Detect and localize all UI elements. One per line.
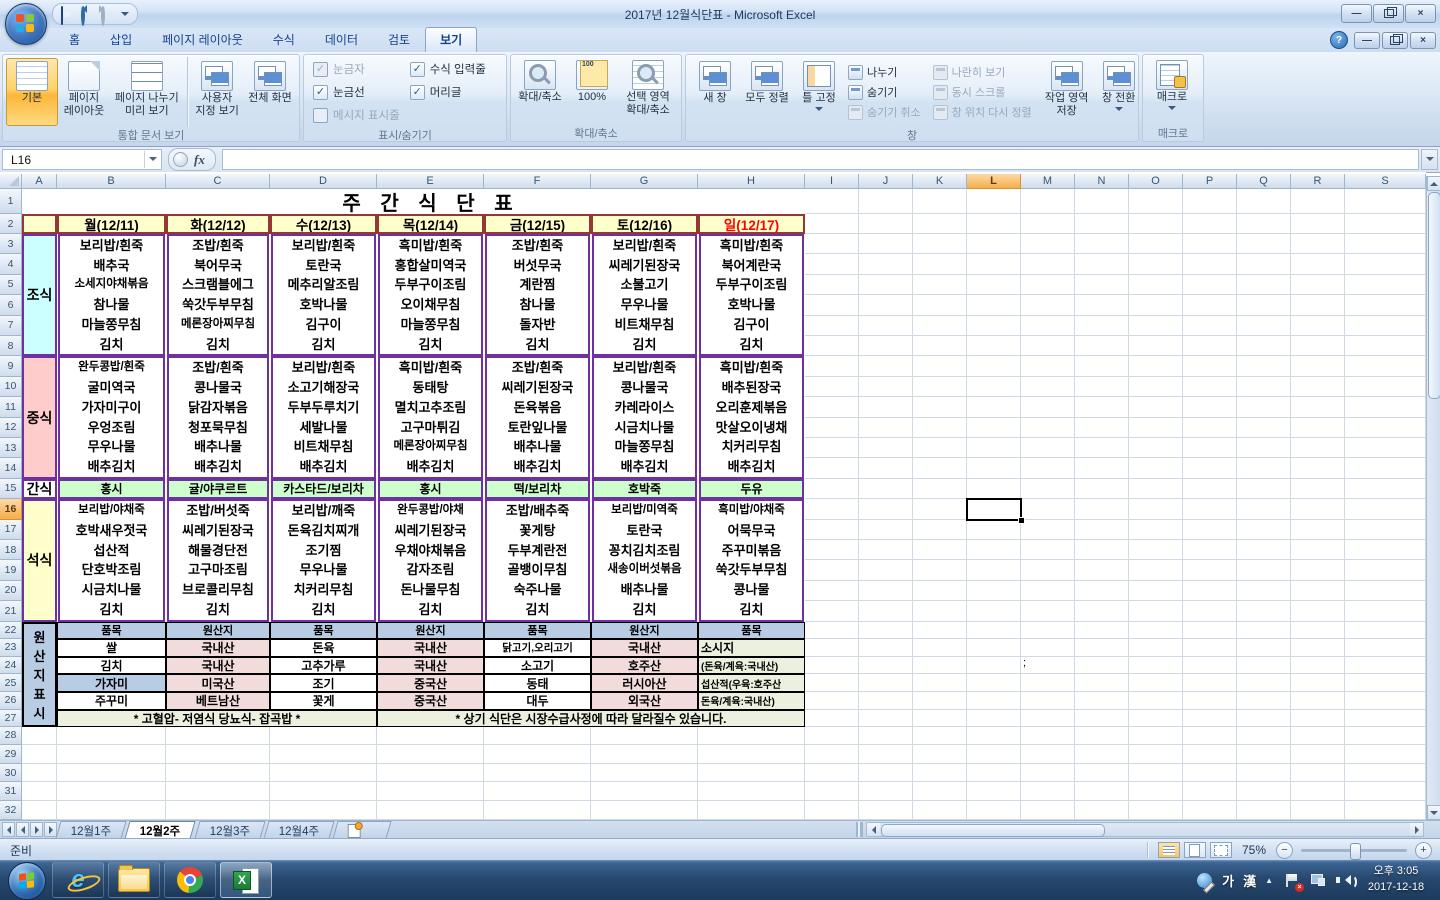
start-button[interactable] xyxy=(8,862,46,900)
sheet-tab-label: 12월4주 xyxy=(279,823,319,839)
origin-cell[interactable]: 가자미 xyxy=(57,674,166,692)
formula-bar: L16 fx xyxy=(0,147,1440,173)
menu-item: 조밥/배추죽 xyxy=(487,501,588,521)
normal-view-icon xyxy=(16,61,48,91)
title-bar: 2017년 12월식단표 - Microsoft Excel — × xyxy=(0,0,1440,29)
meal-cell-breakfast-day5[interactable]: 조밥/흰죽버섯무국계란찜참나물돌자반김치 xyxy=(485,234,590,356)
checkbox-label: 메시지 표시줄 xyxy=(333,107,400,123)
internet-explorer-button[interactable]: e xyxy=(52,862,104,898)
ribbon-button-label: 매크로 xyxy=(1157,91,1187,104)
function-circle-icon xyxy=(173,152,188,167)
row-header-3[interactable]: 3 xyxy=(0,234,22,254)
page-view-icon xyxy=(1189,844,1200,857)
ribbon-button-매크로[interactable]: 매크로 xyxy=(1146,57,1198,125)
ribbon-tab-삽입[interactable]: 삽입 xyxy=(95,27,147,52)
normal-view-button[interactable] xyxy=(1158,842,1180,858)
row-header-32[interactable]: 32 xyxy=(0,801,22,820)
row-header-20[interactable]: 20 xyxy=(0,581,22,601)
meal-cell-breakfast-day6[interactable]: 보리밥/흰죽씨레기된장국소불고기무우나물비트채무침김치 xyxy=(592,234,697,356)
close-button[interactable]: × xyxy=(1405,4,1436,23)
menu-item: 두부계란전 xyxy=(487,541,588,561)
row-header-2[interactable]: 2 xyxy=(0,214,22,234)
excel-application-window: 2017년 12월식단표 - Microsoft Excel — × 홈삽입페이… xyxy=(0,0,1440,900)
row-header-11[interactable]: 11 xyxy=(0,397,22,417)
selected-cell-outline[interactable] xyxy=(966,498,1022,520)
workbook-restore-button[interactable] xyxy=(1382,32,1408,49)
synchronous-scrolling-icon xyxy=(933,85,948,100)
vertical-scrollbar[interactable] xyxy=(1426,176,1440,820)
row-header-29[interactable]: 29 xyxy=(0,745,22,764)
origin-cell[interactable]: 국내산 xyxy=(166,639,270,657)
menu-item: 배추나물 xyxy=(594,580,695,600)
ribbon-button-페이지 나누기 미리 보기[interactable]: 페이지 나누기 미리 보기 xyxy=(110,58,184,126)
select-all-button[interactable] xyxy=(0,174,22,189)
column-header-E[interactable]: E xyxy=(377,174,484,189)
checkbox-수식 입력줄[interactable]: 수식 입력줄 xyxy=(410,61,486,77)
origin-header-cell[interactable]: 품목 xyxy=(698,622,805,640)
name-box-value: L16 xyxy=(11,153,31,167)
ribbon-button-숨기기[interactable]: 숨기기 xyxy=(848,83,921,101)
row-header-7[interactable]: 7 xyxy=(0,316,22,336)
action-center-icon[interactable]: × xyxy=(1282,871,1300,889)
chrome-button[interactable] xyxy=(164,862,216,898)
page-layout-view-icon xyxy=(68,61,100,91)
menu-item: 홍합살미역국 xyxy=(380,256,481,276)
ribbon-button-페이지 레이아웃[interactable]: 페이지 레이아웃 xyxy=(58,58,110,126)
page-layout-view-button[interactable] xyxy=(1184,842,1206,858)
row-header-28[interactable]: 28 xyxy=(0,727,22,746)
menu-item: 마늘쫑무침 xyxy=(594,437,695,457)
column-header-N[interactable]: N xyxy=(1075,174,1129,189)
checkbox-icon[interactable] xyxy=(313,85,328,100)
column-header-S[interactable]: S xyxy=(1345,174,1426,189)
menu-item: 두부두루치기 xyxy=(273,398,374,418)
ime-korean-indicator[interactable]: 가 xyxy=(1222,871,1234,890)
origin-cell[interactable]: 국내산 xyxy=(377,657,484,675)
origin-cell[interactable]: 외국산 xyxy=(591,692,698,710)
origin-cell[interactable]: 김치 xyxy=(57,657,166,675)
menu-item: 섭산적 xyxy=(60,541,163,561)
zoom-out-button[interactable]: − xyxy=(1276,842,1293,859)
origin-header-cell[interactable]: 품목 xyxy=(484,622,591,640)
origin-cell[interactable]: 닭고기,오리고기 xyxy=(484,639,591,657)
ribbon-tab-수식[interactable]: 수식 xyxy=(258,27,310,52)
day-header-목(12/14)[interactable]: 목(12/14) xyxy=(377,214,484,234)
ribbon-tab-보기[interactable]: 보기 xyxy=(425,27,477,52)
ribbon-button-나누기[interactable]: 나누기 xyxy=(848,63,921,81)
vertical-scroll-thumb[interactable] xyxy=(1428,192,1440,399)
origin-cell[interactable]: 꽃게 xyxy=(270,692,377,710)
scroll-right-button[interactable] xyxy=(1410,823,1423,836)
checkbox-눈금선[interactable]: 눈금선 xyxy=(313,84,400,100)
zoom-100-icon xyxy=(576,60,608,90)
meal-cell-dinner-day4[interactable]: 완두콩밥/야채씨레기된장국우채야채볶음감자조림돈나물무침김치 xyxy=(378,499,483,621)
row-header-19[interactable]: 19 xyxy=(0,560,22,580)
origin-cell[interactable]: 국내산 xyxy=(377,639,484,657)
diet-note-left[interactable]: * 고혈압- 저염식 당뇨식- 잡곡밥 * xyxy=(57,710,377,727)
insert-function-button[interactable]: fx xyxy=(168,148,216,171)
gridline xyxy=(22,744,1426,745)
day-header-spacer[interactable] xyxy=(22,214,57,234)
origin-header-cell[interactable]: 원산지 xyxy=(166,622,270,640)
checkbox-icon[interactable] xyxy=(410,62,425,77)
origin-cell[interactable]: 대두 xyxy=(484,692,591,710)
sheet-tab-navigation xyxy=(2,822,57,837)
menu-item: 비트채무침 xyxy=(594,315,695,335)
origin-header-cell[interactable]: 품목 xyxy=(270,622,377,640)
row-header-16[interactable]: 16 xyxy=(0,499,22,519)
menu-item: 굴미역국 xyxy=(60,378,163,398)
first-sheet-button[interactable] xyxy=(2,822,15,837)
zoom-slider-thumb[interactable] xyxy=(1350,843,1361,860)
meal-cell-snack-day4[interactable]: 홍시 xyxy=(378,479,483,499)
ribbon-button-전체 화면[interactable]: 전체 화면 xyxy=(244,58,296,126)
menu-item: 콩나물 xyxy=(701,580,802,600)
checkbox-icon[interactable] xyxy=(410,85,425,100)
ribbon-button-모두 정렬[interactable]: 모두 정렬 xyxy=(741,58,793,126)
meal-cell-dinner-day7[interactable]: 흑미밥/야채죽어묵무국주꾸미볶음쑥갓두부무침콩나물김치 xyxy=(699,499,804,621)
meal-cell-breakfast-day1[interactable]: 보리밥/흰죽배추국소세지야채볶음참나물마늘쫑무침김치 xyxy=(58,234,165,356)
ime-tool-icon[interactable] xyxy=(1195,871,1213,889)
sheet-tab-12월1주[interactable]: 12월1주 xyxy=(55,821,127,839)
ribbon-button-틀 고정[interactable]: 틀 고정 xyxy=(793,58,845,126)
zoom-slider-track[interactable] xyxy=(1301,849,1407,852)
menu-item: 보리밥/흰죽 xyxy=(594,358,695,378)
formula-input[interactable] xyxy=(222,149,1419,170)
checkbox-머리글[interactable]: 머리글 xyxy=(410,84,486,100)
menu-item: 고구마튀김 xyxy=(380,418,481,438)
arrow-up-icon xyxy=(1430,178,1438,186)
insert-worksheet-tab[interactable] xyxy=(333,821,392,839)
row-header-22[interactable]: 22 xyxy=(0,622,22,640)
column-header-C[interactable]: C xyxy=(166,174,270,189)
ribbon-button-label: 페이지 나누기 미리 보기 xyxy=(114,92,180,118)
chrome-icon xyxy=(177,867,203,893)
row-header-13[interactable]: 13 xyxy=(0,438,22,458)
row-header-10[interactable]: 10 xyxy=(0,377,22,397)
origin-header-cell[interactable]: 품목 xyxy=(57,622,166,640)
ribbon-button-label: 페이지 레이아웃 xyxy=(62,92,106,118)
meal-cell-lunch-day7[interactable]: 흑미밥/흰죽배추된장국오리훈제볶음맛살오이냉채치커리무침배추김치 xyxy=(699,356,804,478)
dropdown-arrow-icon xyxy=(1115,107,1123,115)
menu-item: 조기찜 xyxy=(273,541,374,561)
meal-cell-dinner-day2[interactable]: 조밥/버섯죽씨레기된장국해물경단전고구마조림브로콜리무침김치 xyxy=(167,499,269,621)
menu-item: 카레라이스 xyxy=(594,398,695,418)
formula-bar-expand-button[interactable] xyxy=(1421,149,1438,170)
origin-cell[interactable]: (돈육/계육:국내산) xyxy=(698,657,805,675)
day-header-토(12/16)[interactable]: 토(12/16) xyxy=(591,214,698,234)
menu-item: 가자미구이 xyxy=(60,398,163,418)
origin-cell[interactable]: 중국산 xyxy=(377,674,484,692)
page-break-view-button[interactable] xyxy=(1210,842,1232,858)
column-header-K[interactable]: K xyxy=(913,174,967,189)
row-header-1[interactable]: 1 xyxy=(0,189,22,214)
section-label-중식[interactable]: 중식 xyxy=(22,356,57,478)
sheet-tab-label: 12월3주 xyxy=(210,823,250,839)
ime-hanja-indicator[interactable]: 漢 xyxy=(1243,871,1256,890)
fill-handle[interactable] xyxy=(1018,517,1025,524)
sheet-tab-12월4주[interactable]: 12월4주 xyxy=(263,821,335,839)
menu-item: 쑥갓두부무침 xyxy=(169,295,267,315)
origin-cell[interactable]: 섭산적(우육:호주산 xyxy=(698,674,805,692)
meal-cell-snack-day3[interactable]: 카스타드/보리차 xyxy=(271,479,376,499)
arrow-down-icon xyxy=(1430,811,1438,819)
scroll-up-button[interactable] xyxy=(1427,176,1440,191)
row-header-17[interactable]: 17 xyxy=(0,520,22,540)
origin-cell[interactable]: 주꾸미 xyxy=(57,692,166,710)
ribbon-button-동시 스크롤: 동시 스크롤 xyxy=(933,83,1032,101)
day-header-일(12/17)[interactable]: 일(12/17) xyxy=(698,214,805,234)
menu-item: 흑미밥/흰죽 xyxy=(701,358,802,378)
column-header-F[interactable]: F xyxy=(484,174,591,189)
meal-cell-dinner-day1[interactable]: 보리밥/야채죽호박새우젓국섭산적단호박조림시금치나물김치 xyxy=(58,499,165,621)
menu-item: 배추나물 xyxy=(487,437,588,457)
page-break-icon xyxy=(1214,845,1228,856)
meal-cell-lunch-day5[interactable]: 조밥/흰죽씨레기된장국돈육볶음토란잎나물배추나물배추김치 xyxy=(485,356,590,478)
menu-item: 보리밥/흰죽 xyxy=(60,236,163,256)
column-header-M[interactable]: M xyxy=(1021,174,1075,189)
save-workspace-icon xyxy=(1051,61,1083,91)
gridline xyxy=(22,781,1426,782)
row-header-25[interactable]: 25 xyxy=(0,674,22,692)
ribbon-button-새 창[interactable]: 새 창 xyxy=(689,58,741,126)
day-header-수(12/13)[interactable]: 수(12/13) xyxy=(270,214,377,234)
menu-item: 단호박조림 xyxy=(60,560,163,580)
next-sheet-button[interactable] xyxy=(30,822,43,837)
day-header-월(12/11)[interactable]: 월(12/11) xyxy=(57,214,166,234)
sheet-tab-12월2주[interactable]: 12월2주 xyxy=(125,821,197,839)
column-header-I[interactable]: I xyxy=(805,174,859,189)
origin-cell[interactable]: 소시지 xyxy=(698,639,805,657)
ribbon-button-작업 영역 저장[interactable]: 작업 영역 저장 xyxy=(1041,58,1093,126)
meal-cell-breakfast-day2[interactable]: 조밥/흰죽북어무국스크램블에그쑥갓두부무침메론장아찌무침김치 xyxy=(167,234,269,356)
row-header-23[interactable]: 23 xyxy=(0,639,22,657)
meal-cell-breakfast-day4[interactable]: 흑미밥/흰죽홍합살미역국두부구이조림오이채무침마늘쫑무침김치 xyxy=(378,234,483,356)
origin-cell[interactable]: 돈육 xyxy=(270,639,377,657)
zoom-level[interactable]: 75% xyxy=(1242,843,1266,857)
origin-cell[interactable]: 베트남산 xyxy=(166,692,270,710)
ribbon-button-선택 영역 확대/축소[interactable]: 선택 영역 확대/축소 xyxy=(618,57,678,125)
column-header-O[interactable]: O xyxy=(1129,174,1183,189)
row-header-26[interactable]: 26 xyxy=(0,692,22,710)
menu-item: 메론장아찌무침 xyxy=(380,437,481,457)
sheet-tabs: 12월1주12월2주12월3주12월4주 xyxy=(58,821,392,839)
scroll-left-button[interactable] xyxy=(867,823,880,836)
switch-windows-icon xyxy=(1103,61,1135,91)
meal-cell-breakfast-day3[interactable]: 보리밥/흰죽토란국메추리알조림호박나물김구이김치 xyxy=(271,234,376,356)
column-header-P[interactable]: P xyxy=(1183,174,1237,189)
origin-header-cell[interactable]: 원산지 xyxy=(377,622,484,640)
section-label-원산지표시[interactable]: 원산지표시 xyxy=(22,622,57,727)
ribbon-group-label: 매크로 xyxy=(1143,127,1203,141)
sheet-tab-bar: 12월1주12월2주12월3주12월4주 xyxy=(0,820,1440,839)
ribbon-button-창 전환[interactable]: 창 전환 xyxy=(1093,58,1145,126)
restore-button[interactable] xyxy=(1373,4,1404,23)
ribbon-button-사용자 지정 보기[interactable]: 사용자 지정 보기 xyxy=(190,58,244,126)
meal-cell-snack-day2[interactable]: 귤/야쿠르트 xyxy=(167,479,269,499)
meal-cell-dinner-day5[interactable]: 조밥/배추죽꽃게탕두부계란전골뱅이무침숙주나물김치 xyxy=(485,499,590,621)
origin-label-char: 시 xyxy=(34,703,46,722)
ribbon-button-확대/축소[interactable]: 확대/축소 xyxy=(514,57,566,125)
column-header-J[interactable]: J xyxy=(859,174,913,189)
menu-item: 호박죽 xyxy=(594,481,695,497)
ribbon-button-기본[interactable]: 기본 xyxy=(6,58,58,126)
section-label-조식[interactable]: 조식 xyxy=(22,234,57,356)
ribbon-tab-검토[interactable]: 검토 xyxy=(373,27,425,52)
row-header-30[interactable]: 30 xyxy=(0,764,22,783)
meal-cell-lunch-day1[interactable]: 완두콩밥/흰죽굴미역국가자미구이우엉조림무우나물배추김치 xyxy=(58,356,165,478)
menu-item: 보리밥/흰죽 xyxy=(273,236,374,256)
origin-cell[interactable]: 호주산 xyxy=(591,657,698,675)
row-header-14[interactable]: 14 xyxy=(0,458,22,478)
ribbon-tabs: 홈삽입페이지 레이아웃수식데이터검토보기 xyxy=(54,28,477,52)
day-header-금(12/15)[interactable]: 금(12/15) xyxy=(484,214,591,234)
menu-item: 배추김치 xyxy=(273,457,374,477)
meal-cell-lunch-day6[interactable]: 보리밥/흰죽콩나물국카레라이스시금치나물마늘쫑무침배추김치 xyxy=(592,356,697,478)
menu-item: 해물경단전 xyxy=(169,541,267,561)
menu-title[interactable]: 주 간 식 단 표 xyxy=(57,189,805,214)
workbook-minimize-button[interactable]: — xyxy=(1354,32,1380,49)
sheet-tab-12월3주[interactable]: 12월3주 xyxy=(194,821,266,839)
ribbon-button-label: 기본 xyxy=(22,92,42,105)
menu-item: 골뱅이무침 xyxy=(487,560,588,580)
taskbar-clock[interactable]: 오후 3:05 2017-12-18 xyxy=(1358,863,1434,895)
origin-header-cell[interactable]: 원산지 xyxy=(591,622,698,640)
tab-scrollbar-splitter[interactable] xyxy=(856,822,863,837)
menu-item: 콩나물국 xyxy=(594,378,695,398)
row-header-9[interactable]: 9 xyxy=(0,356,22,376)
name-box-dropdown[interactable] xyxy=(144,151,161,168)
volume-icon[interactable] xyxy=(1336,871,1354,889)
split-icon xyxy=(848,65,863,80)
day-header-화(12/12)[interactable]: 화(12/12) xyxy=(166,214,270,234)
ribbon-group-content: 눈금자눈금선메시지 표시줄수식 입력줄머리글 xyxy=(304,55,506,129)
row-header-15[interactable]: 15 xyxy=(0,479,22,499)
ribbon-group-창: 새 창모두 정렬틀 고정나누기숨기기숨기기 취소나란히 보기동시 스크롤창 위치… xyxy=(685,54,1139,142)
menu-item: 닭감자볶음 xyxy=(169,398,267,418)
workbook-close-button[interactable]: × xyxy=(1410,32,1436,49)
origin-cell[interactable]: 동태 xyxy=(484,674,591,692)
row-header-24[interactable]: 24 xyxy=(0,657,22,675)
origin-cell[interactable]: 소고기 xyxy=(484,657,591,675)
menu-item: 홍시 xyxy=(380,481,481,497)
horizontal-scrollbar[interactable] xyxy=(866,822,1424,837)
ribbon-tab-페이지 레이아웃[interactable]: 페이지 레이아웃 xyxy=(147,27,258,52)
last-sheet-button[interactable] xyxy=(44,822,57,837)
meal-cell-lunch-day4[interactable]: 흑미밥/흰죽동태탕멸치고추조림고구마튀김메론장아찌무침배추김치 xyxy=(378,356,483,478)
excel-taskbar-button[interactable]: X xyxy=(220,862,272,898)
chevron-down-icon xyxy=(1426,157,1434,165)
diet-note-right[interactable]: * 상기 식단은 시장수급사정에 따라 달라질수 있습니다. xyxy=(377,710,805,727)
menu-item: 배추김치 xyxy=(60,457,163,477)
scroll-down-button[interactable] xyxy=(1427,805,1440,820)
origin-cell[interactable]: 미국산 xyxy=(166,674,270,692)
hide-window-icon xyxy=(848,85,863,100)
ribbon-button-label: 전체 화면 xyxy=(248,92,292,105)
section-label-석식[interactable]: 석식 xyxy=(22,499,57,621)
meal-cell-dinner-day6[interactable]: 보리밥/미역죽토란국꽁치김치조림새송이버섯볶음배추나물김치 xyxy=(592,499,697,621)
meal-cell-snack-day7[interactable]: 두유 xyxy=(699,479,804,499)
row-header-6[interactable]: 6 xyxy=(0,295,22,315)
row-header-18[interactable]: 18 xyxy=(0,540,22,560)
meal-cell-snack-day5[interactable]: 떡/보리차 xyxy=(485,479,590,499)
menu-item: 배추김치 xyxy=(169,457,267,477)
row-header-12[interactable]: 12 xyxy=(0,418,22,438)
menu-item: 조밥/흰죽 xyxy=(487,236,588,256)
meal-cell-lunch-day3[interactable]: 보리밥/흰죽소고기해장국두부두루치기세발나물비트채무침배추김치 xyxy=(271,356,376,478)
origin-cell[interactable]: 중국산 xyxy=(377,692,484,710)
ribbon-button-100%[interactable]: 100% xyxy=(566,57,618,125)
stray-cell-text: ; xyxy=(1023,657,1026,669)
row-header-4[interactable]: 4 xyxy=(0,254,22,274)
meal-cell-snack-day6[interactable]: 호박죽 xyxy=(592,479,697,499)
ribbon-group-label: 창 xyxy=(686,129,1138,143)
horizontal-scroll-thumb[interactable] xyxy=(881,824,1105,837)
origin-cell[interactable]: 국내산 xyxy=(166,657,270,675)
system-tray: 가 漢 ▲ × xyxy=(1195,860,1354,900)
row-header-21[interactable]: 21 xyxy=(0,601,22,621)
minimize-button[interactable]: — xyxy=(1341,4,1372,23)
row-header-31[interactable]: 31 xyxy=(0,782,22,801)
file-explorer-button[interactable] xyxy=(108,862,160,898)
origin-cell[interactable]: 조기 xyxy=(270,674,377,692)
previous-sheet-button[interactable] xyxy=(16,822,29,837)
ribbon-button-label: 작업 영역 저장 xyxy=(1045,92,1089,118)
restore-icon xyxy=(1384,9,1394,18)
ribbon-button-숨기기 취소: 숨기기 취소 xyxy=(848,103,921,121)
column-header-B[interactable]: B xyxy=(57,174,166,189)
menu-item: 두유 xyxy=(701,481,802,497)
menu-item: 참나물 xyxy=(487,295,588,315)
ribbon-group-content: 기본페이지 레이아웃페이지 나누기 미리 보기사용자 지정 보기전체 화면 xyxy=(3,55,299,129)
menu-item: 배추국 xyxy=(60,256,163,276)
meal-cell-lunch-day2[interactable]: 조밥/흰죽콩나물국닭감자볶음청포묵무침배추나물배추김치 xyxy=(167,356,269,478)
origin-cell[interactable]: 러시아산 xyxy=(591,674,698,692)
zoom-in-button[interactable]: + xyxy=(1415,842,1432,859)
column-header-Q[interactable]: Q xyxy=(1237,174,1291,189)
origin-cell[interactable]: 돈육/계육:국내산) xyxy=(698,692,805,710)
monitor-plug-icon xyxy=(1311,874,1325,886)
network-icon[interactable] xyxy=(1309,871,1327,889)
column-header-D[interactable]: D xyxy=(270,174,377,189)
meal-cell-dinner-day3[interactable]: 보리밥/깨죽돈육김치찌개조기찜무우나물치커리무침김치 xyxy=(271,499,376,621)
menu-item: 귤/야쿠르트 xyxy=(169,481,267,497)
origin-cell[interactable]: 고추가루 xyxy=(270,657,377,675)
office-button[interactable] xyxy=(5,3,47,45)
help-button[interactable]: ? xyxy=(1330,31,1348,49)
row-header-27[interactable]: 27 xyxy=(0,710,22,727)
name-box[interactable]: L16 xyxy=(2,149,162,170)
column-header-R[interactable]: R xyxy=(1291,174,1345,189)
ribbon-tab-데이터[interactable]: 데이터 xyxy=(310,27,373,52)
column-header-L[interactable]: L xyxy=(967,174,1021,189)
column-header-A[interactable]: A xyxy=(22,174,57,189)
origin-cell[interactable]: 국내산 xyxy=(591,639,698,657)
meal-cell-snack-day1[interactable]: 홍시 xyxy=(58,479,165,499)
row-header-5[interactable]: 5 xyxy=(0,275,22,295)
worksheet-grid: ABCDEFGHIJKLMNOPQRS123456789101112131415… xyxy=(0,172,1426,820)
origin-cell[interactable]: 쌀 xyxy=(57,639,166,657)
column-header-G[interactable]: G xyxy=(591,174,698,189)
tray-expand-button[interactable]: ▲ xyxy=(1265,876,1273,885)
ribbon-button-label: 선택 영역 확대/축소 xyxy=(622,91,674,117)
ribbon-tab-홈[interactable]: 홈 xyxy=(54,27,95,52)
column-header-H[interactable]: H xyxy=(698,174,805,189)
error-badge-icon: × xyxy=(1295,883,1304,892)
meal-cell-breakfast-day7[interactable]: 흑미밥/흰죽북어계란국두부구이조림호박나물김구이김치 xyxy=(699,234,804,356)
section-label-간식[interactable]: 간식 xyxy=(22,479,57,499)
row-header-8[interactable]: 8 xyxy=(0,336,22,356)
